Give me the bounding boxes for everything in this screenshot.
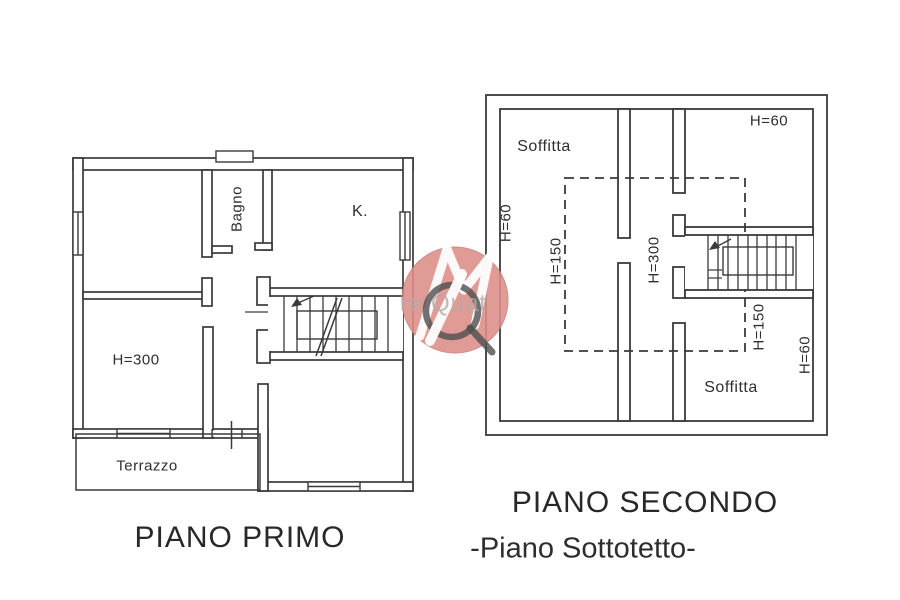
- watermark-text: re Quat: [400, 290, 487, 318]
- wall: [673, 323, 685, 421]
- piano-secondo-title: PIANO SECONDO: [512, 488, 778, 518]
- room-label-kitchen: K.: [352, 204, 368, 220]
- height-label-h300-center: H=300: [647, 236, 662, 283]
- room-label-bagno: Bagno: [230, 186, 245, 232]
- wall: [202, 170, 212, 257]
- wall: [618, 109, 630, 238]
- wall: [258, 352, 403, 360]
- staircase-secondo: [685, 235, 813, 290]
- height-label-h60-right: H=60: [798, 336, 813, 374]
- staircase-primo: [268, 296, 403, 356]
- piano-sottotetto-subtitle: -Piano Sottotetto-: [470, 535, 696, 564]
- wall: [673, 109, 685, 193]
- wall: [263, 288, 403, 296]
- floorplan-page: Bagno K. H=300 Terrazzo PIANO PRIMO Soff…: [0, 0, 900, 600]
- wall: [263, 170, 272, 250]
- height-label-h150-right: H=150: [752, 303, 767, 350]
- wall: [203, 327, 213, 438]
- wall: [212, 246, 232, 253]
- height-label-h150-left: H=150: [549, 237, 564, 284]
- height-label-h60-left: H=60: [499, 204, 514, 242]
- wall: [618, 263, 630, 421]
- wall: [685, 227, 813, 235]
- height-label-h300-primo: H=300: [112, 353, 159, 368]
- piano-primo-title: PIANO PRIMO: [134, 523, 345, 553]
- wall: [202, 278, 212, 306]
- room-label-soffitta-top: Soffitta: [517, 139, 571, 155]
- wall: [83, 292, 203, 299]
- wall: [673, 215, 685, 236]
- wall: [685, 290, 813, 298]
- height-label-h60-top-right: H=60: [750, 114, 788, 129]
- wall: [73, 158, 83, 438]
- room-label-terrazzo: Terrazzo: [116, 459, 178, 474]
- door-opening: [212, 421, 242, 449]
- wall: [255, 243, 272, 250]
- wall: [673, 267, 685, 298]
- room-label-soffitta-bottom: Soffitta: [704, 380, 758, 396]
